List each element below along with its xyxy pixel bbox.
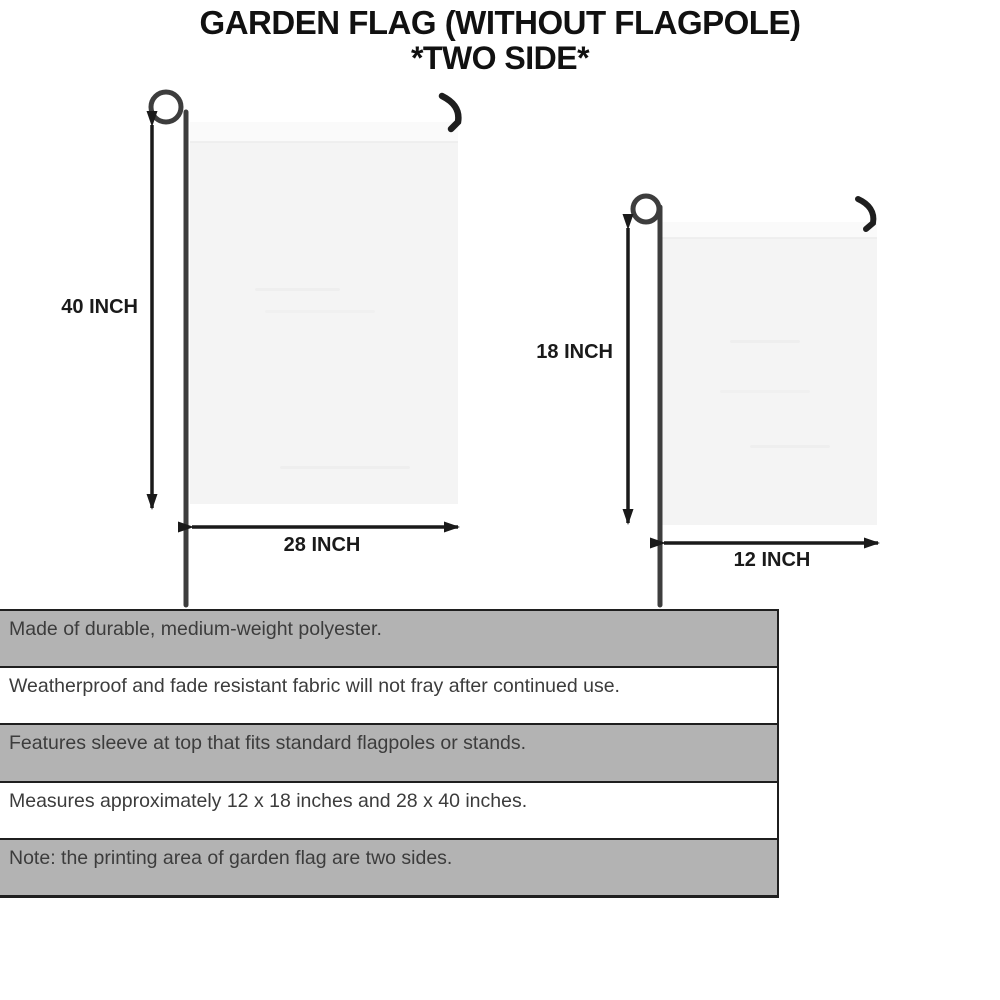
flag-crease — [750, 445, 830, 448]
pole-loop-icon — [633, 196, 659, 222]
product-spec-list: Made of durable, medium-weight polyester… — [0, 609, 779, 898]
page-title: GARDEN FLAG (WITHOUT FLAGPOLE) *TWO SIDE… — [0, 6, 1000, 76]
title-line-2: *TWO SIDE* — [0, 41, 1000, 76]
flag-crease — [720, 390, 810, 393]
small-flag-body — [662, 222, 877, 525]
large-flag-height-label: 40 INCH — [40, 296, 138, 319]
flag-crease — [255, 288, 340, 291]
large-flag-width-label: 28 INCH — [242, 534, 402, 557]
small-flag-diagram — [600, 185, 900, 610]
spec-row-sleeve: Features sleeve at top that fits standar… — [0, 725, 777, 782]
small-flag-height-label: 18 INCH — [495, 341, 613, 364]
pole-loop-icon — [151, 92, 181, 122]
spec-row-measurements: Measures approximately 12 x 18 inches an… — [0, 783, 777, 840]
flag-crease — [730, 340, 800, 343]
spec-row-material: Made of durable, medium-weight polyester… — [0, 611, 777, 668]
spec-row-note: Note: the printing area of garden flag a… — [0, 840, 777, 895]
large-flag-sleeve — [190, 122, 458, 142]
flag-crease — [265, 310, 375, 313]
flag-crease — [280, 466, 410, 469]
garden-flag-infographic: GARDEN FLAG (WITHOUT FLAGPOLE) *TWO SIDE… — [0, 0, 1000, 1000]
small-flag-sleeve — [662, 222, 877, 238]
small-flag-width-label: 12 INCH — [692, 549, 852, 572]
spec-row-weatherproof: Weatherproof and fade resistant fabric w… — [0, 668, 777, 725]
title-line-1: GARDEN FLAG (WITHOUT FLAGPOLE) — [0, 6, 1000, 41]
